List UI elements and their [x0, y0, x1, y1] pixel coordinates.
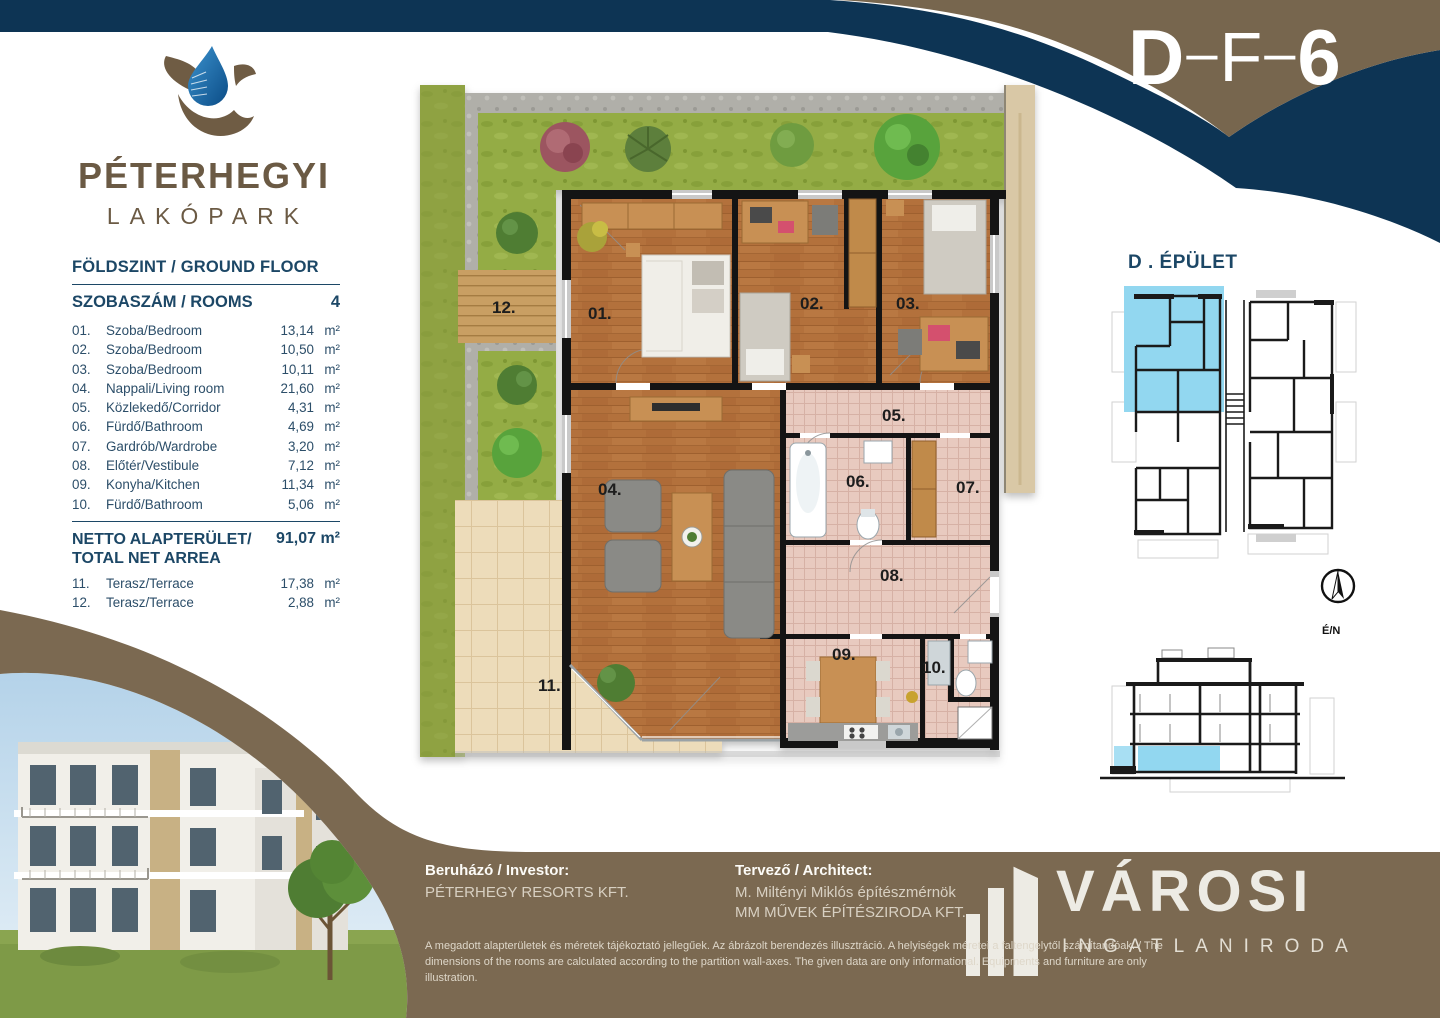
- agency-name: VÁROSI: [1056, 858, 1314, 925]
- room-rows: 01.Szoba/Bedroom13,14m²02.Szoba/Bedroom1…: [72, 321, 340, 514]
- room-row: 04.Nappali/Living room21,60m²: [72, 379, 340, 398]
- room-row: 08.Előtér/Vestibule7,12m²: [72, 456, 340, 475]
- divider: [72, 521, 340, 522]
- room-row-nm: Közlekedő/Corridor: [106, 398, 268, 417]
- room-row: 12.Terasz/Terrace2,88m²: [72, 593, 340, 612]
- floor-plan: 01. 02. 03. 04. 05. 06. 07. 08. 09. 10. …: [420, 85, 1035, 757]
- room-row-no: 11.: [72, 574, 106, 593]
- label-terrace-12: 12.: [492, 298, 516, 317]
- compass-icon: [1318, 566, 1358, 606]
- label-room-06: 06.: [846, 472, 870, 491]
- compass-label: É/N: [1322, 625, 1340, 637]
- room-row-ar: 10,11: [268, 360, 314, 379]
- room-row-un: m²: [314, 321, 340, 340]
- room-row-nm: Szoba/Bedroom: [106, 340, 268, 359]
- room-row-nm: Szoba/Bedroom: [106, 321, 268, 340]
- label-room-07: 07.: [956, 478, 980, 497]
- room-row-nm: Fürdő/Bathroom: [106, 495, 268, 514]
- logo-drop: [188, 46, 228, 106]
- architect-line1: M. Miltényi Miklós építészmérnök: [735, 883, 966, 903]
- key-floor-plan: [1108, 282, 1358, 560]
- room-row-nm: Terasz/Terrace: [106, 593, 268, 612]
- room-row-ar: 13,14: [268, 321, 314, 340]
- room-row-un: m²: [314, 437, 340, 456]
- investor-block: Beruházó / Investor: PÉTERHEGY RESORTS K…: [425, 862, 629, 903]
- unit-code: D – F – 6: [1128, 18, 1388, 96]
- room-row-un: m²: [314, 340, 340, 359]
- room-row-no: 10.: [72, 495, 106, 514]
- building-title: D . ÉPÜLET: [1128, 252, 1238, 274]
- room-row-un: m²: [314, 398, 340, 417]
- room-row-no: 02.: [72, 340, 106, 359]
- highlighted-unit: [1124, 286, 1224, 412]
- investor-name: PÉTERHEGY RESORTS KFT.: [425, 883, 629, 903]
- room-row: 09.Konyha/Kitchen11,34m²: [72, 475, 340, 494]
- room-row-ar: 17,38: [268, 574, 314, 593]
- terrace-rows: 11.Terasz/Terrace17,38m²12.Terasz/Terrac…: [72, 574, 340, 613]
- label-room-02: 02.: [800, 294, 824, 313]
- room-row-nm: Gardrób/Wardrobe: [106, 437, 268, 456]
- room-row-un: m²: [314, 574, 340, 593]
- room-row-nm: Konyha/Kitchen: [106, 475, 268, 494]
- logo-subname: LAKÓPARK: [68, 203, 348, 230]
- label-terrace-11: 11.: [538, 676, 561, 695]
- room-row-un: m²: [314, 379, 340, 398]
- room-row-nm: Fürdő/Bathroom: [106, 417, 268, 436]
- room-row-ar: 4,69: [268, 417, 314, 436]
- logo-name: PÉTERHEGYI: [60, 155, 348, 197]
- label-room-10: 10.: [922, 658, 946, 677]
- label-room-08: 08.: [880, 566, 904, 585]
- room-row-un: m²: [314, 456, 340, 475]
- logo-icon: [149, 44, 259, 140]
- room-row-nm: Előtér/Vestibule: [106, 456, 268, 475]
- unit-code-number: 6: [1297, 18, 1340, 96]
- label-room-09: 09.: [832, 645, 856, 664]
- room-row: 02.Szoba/Bedroom10,50m²: [72, 340, 340, 359]
- room-row: 06.Fürdő/Bathroom4,69m²: [72, 417, 340, 436]
- room-row: 01.Szoba/Bedroom13,14m²: [72, 321, 340, 340]
- logo-wing-tip: [234, 64, 256, 86]
- room-row-no: 03.: [72, 360, 106, 379]
- label-room-01: 01.: [588, 304, 612, 323]
- room-row-ar: 5,06: [268, 495, 314, 514]
- room-row-no: 07.: [72, 437, 106, 456]
- room-row: 07.Gardrób/Wardrobe3,20m²: [72, 437, 340, 456]
- rooms-count: 4: [310, 293, 340, 312]
- room-row-ar: 10,50: [268, 340, 314, 359]
- room-row-ar: 21,60: [268, 379, 314, 398]
- room-row-nm: Terasz/Terrace: [106, 574, 268, 593]
- room-row: 10.Fürdő/Bathroom5,06m²: [72, 495, 340, 514]
- room-row-un: m²: [314, 593, 340, 612]
- room-row-no: 09.: [72, 475, 106, 494]
- total-value: 91,07 m²: [276, 530, 340, 568]
- disclaimer: A megadott alapterületek és méretek tájé…: [425, 938, 1170, 986]
- architect-line2: MM MŰVEK ÉPÍTÉSZIRODA KFT.: [735, 903, 966, 923]
- total-label: NETTO ALAPTERÜLET/ TOTAL NET ARREA: [72, 530, 276, 568]
- room-row-no: 01.: [72, 321, 106, 340]
- room-row-nm: Szoba/Bedroom: [106, 360, 268, 379]
- room-row-no: 05.: [72, 398, 106, 417]
- unit-code-floor: F: [1220, 22, 1263, 92]
- room-row-no: 06.: [72, 417, 106, 436]
- unit-code-building: D: [1128, 18, 1184, 96]
- investor-label: Beruházó / Investor:: [425, 862, 629, 879]
- label-room-05: 05.: [882, 406, 906, 425]
- label-room-03: 03.: [896, 294, 920, 313]
- room-row-ar: 11,34: [268, 475, 314, 494]
- room-row-no: 08.: [72, 456, 106, 475]
- label-room-04: 04.: [598, 480, 622, 499]
- stone-path-top: [465, 93, 1018, 113]
- room-row-nm: Nappali/Living room: [106, 379, 268, 398]
- floor-title: FÖLDSZINT / GROUND FLOOR: [72, 258, 340, 277]
- developer-logo: PÉTERHEGYI LAKÓPARK: [60, 44, 348, 230]
- room-row-un: m²: [314, 360, 340, 379]
- room-row: 05.Közlekedő/Corridor4,31m²: [72, 398, 340, 417]
- room-row-no: 04.: [72, 379, 106, 398]
- brochure-page: PÉTERHEGYI LAKÓPARK FÖLDSZINT / GROUND F…: [0, 0, 1440, 1018]
- room-row-un: m²: [314, 475, 340, 494]
- room-table: FÖLDSZINT / GROUND FLOOR SZOBASZÁM / ROO…: [72, 258, 340, 613]
- building-section: [1100, 638, 1345, 796]
- architect-block: Tervező / Architect: M. Miltényi Miklós …: [735, 862, 966, 923]
- room-row-un: m²: [314, 495, 340, 514]
- divider: [72, 284, 340, 285]
- room-row-ar: 4,31: [268, 398, 314, 417]
- room-row-un: m²: [314, 417, 340, 436]
- total-row: NETTO ALAPTERÜLET/ TOTAL NET ARREA 91,07…: [72, 530, 340, 568]
- room-row-ar: 3,20: [268, 437, 314, 456]
- highlighted-unit-section: [1138, 746, 1220, 772]
- room-row: 03.Szoba/Bedroom10,11m²: [72, 360, 340, 379]
- architect-label: Tervező / Architect:: [735, 862, 966, 879]
- room-row-ar: 2,88: [268, 593, 314, 612]
- room-row: 11.Terasz/Terrace17,38m²: [72, 574, 340, 593]
- rooms-header: SZOBASZÁM / ROOMS 4: [72, 293, 340, 312]
- room-row-ar: 7,12: [268, 456, 314, 475]
- room-row-no: 12.: [72, 593, 106, 612]
- rooms-header-label: SZOBASZÁM / ROOMS: [72, 293, 310, 312]
